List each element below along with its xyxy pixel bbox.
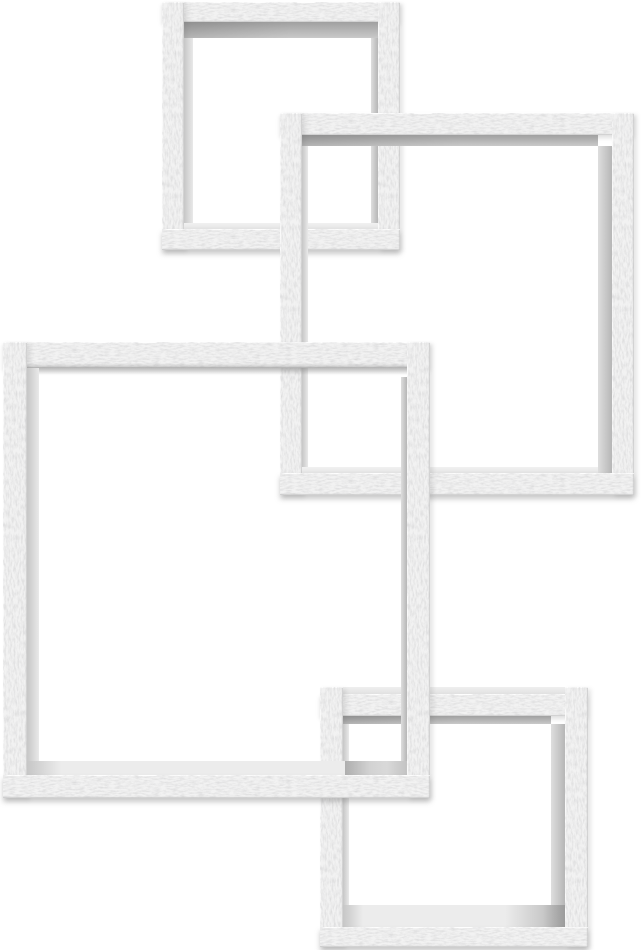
frame-a-top-bar [162,2,400,22]
frame-d-bottom-bar [320,927,588,947]
frame-c-inner-right-wall [401,377,407,761]
frame-c-bottom-bar [3,775,430,798]
frame-d-inner-right-wall [551,724,565,905]
frame-b-right-bar [612,113,634,495]
frame-a-inner-top-wall [184,22,378,38]
frame-b-top-bar [280,113,634,135]
frame-c-left-bar [3,342,27,798]
shelf-frame-middle-left [3,342,430,798]
frame-c-inner-left-wall [27,368,39,761]
frame-a-left-bar [162,2,184,250]
frame-a-inner-left-wall [184,38,193,229]
frame-c-shelf-cast-shadow [345,761,387,775]
frame-c-right-bar [407,342,430,798]
frame-b-inner-top-wall [302,135,598,146]
frame-c-inner-top-wall [27,368,407,375]
frame-c-top-bar [3,342,430,368]
frame-b-inner-right-wall [598,146,612,473]
frame-d-shelf-corner-shadow [505,905,565,927]
product-photo [0,0,641,950]
frame-d-right-bar [565,687,588,947]
